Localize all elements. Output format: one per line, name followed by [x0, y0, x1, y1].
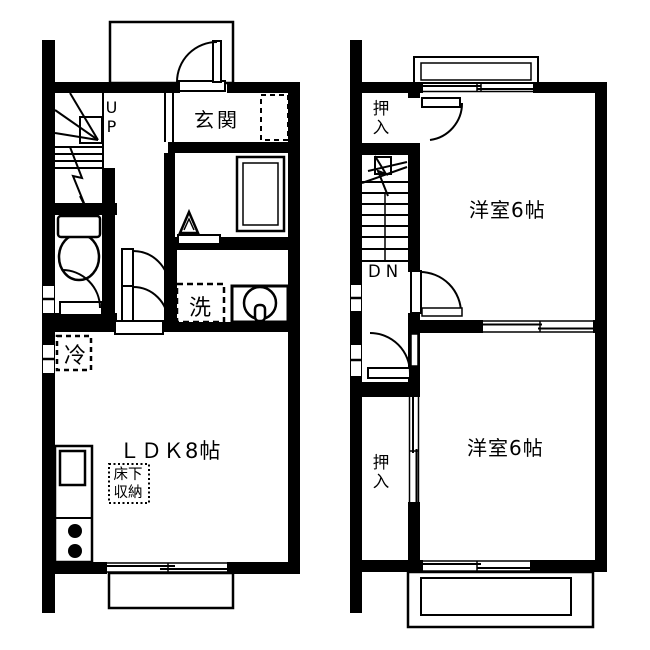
toilet [58, 216, 102, 315]
bedroom-top-label: 洋室6帖 [469, 194, 546, 223]
fusuma-door [410, 397, 419, 502]
floor1-plan [42, 22, 300, 613]
bath-folding-door [178, 212, 220, 244]
shoe-cabinet [261, 95, 288, 140]
up-label: UP [104, 99, 119, 137]
kitchen-counter [55, 446, 92, 562]
balcony-2f [408, 572, 593, 627]
entrance-label: 玄関 [194, 104, 240, 133]
stairs-1f [55, 93, 102, 208]
balcony-1f [109, 573, 233, 608]
window-2f-south [423, 561, 530, 571]
window-1f-south [107, 563, 227, 572]
window-2f-north [423, 83, 533, 92]
dn-label: DN [368, 262, 403, 281]
sliding-partition [483, 321, 593, 332]
wash-basin [232, 286, 288, 322]
washer-label: 洗 [189, 290, 211, 322]
hall-doors [115, 249, 169, 334]
bay-window-2f [414, 57, 538, 83]
ldk-label: ＬＤＫ8帖 [119, 435, 221, 465]
entrance-door [177, 41, 225, 91]
fridge-label: 冷 [64, 338, 86, 370]
closet-bottom-label: 押入 [371, 453, 391, 492]
bathtub [237, 157, 284, 231]
stairs-2f [362, 156, 408, 261]
floorplan-drawing [0, 0, 650, 650]
floor-storage-label: 床下収納 [112, 466, 144, 502]
closet-top-label: 押入 [371, 99, 391, 138]
bedroom-bottom-label: 洋室6帖 [467, 432, 544, 461]
floorplan-canvas: UP 玄関 洗 冷 ＬＤＫ8帖 床下収納 押入 DN 洋室6帖 洋室6帖 押入 [0, 0, 650, 650]
